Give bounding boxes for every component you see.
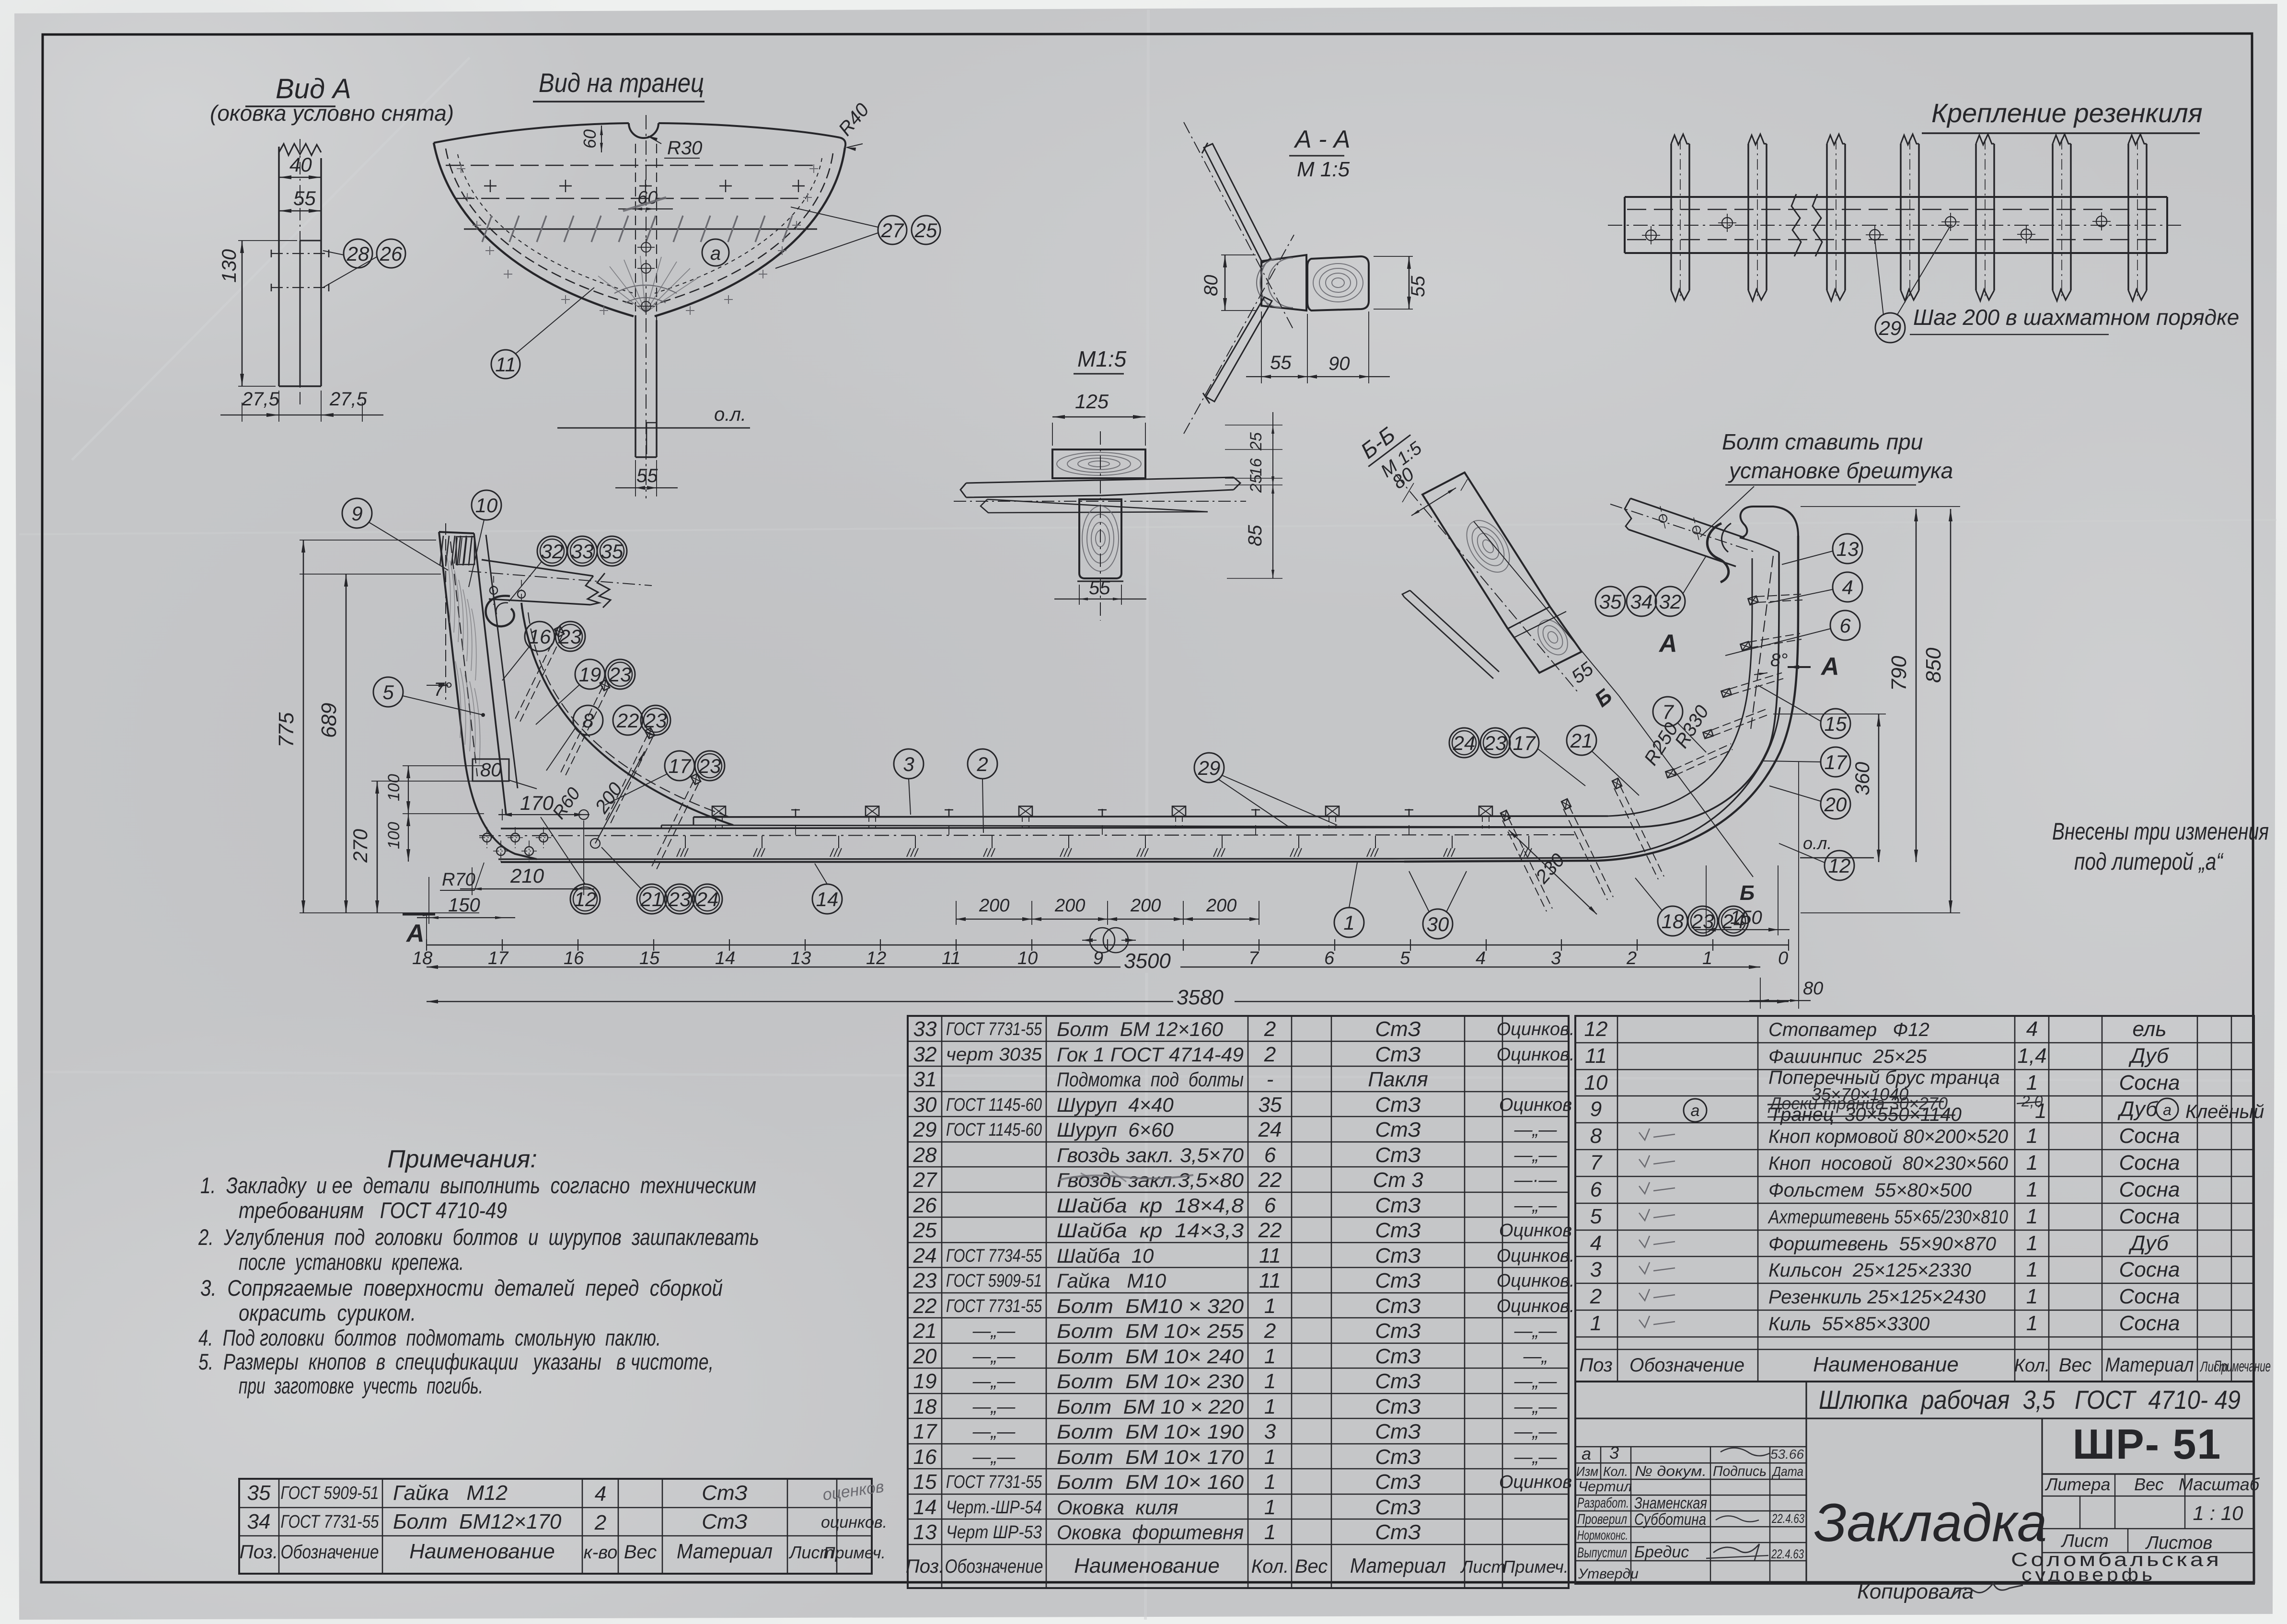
svg-text:1: 1 <box>2026 1071 2038 1094</box>
svg-text:СтЗ: СтЗ <box>1375 1370 1421 1393</box>
svg-text:6: 6 <box>1264 1143 1276 1167</box>
svg-text:18: 18 <box>412 948 432 968</box>
svg-text:СтЗ: СтЗ <box>702 1510 747 1533</box>
svg-text:2: 2 <box>1626 948 1637 968</box>
svg-text:18: 18 <box>913 1395 937 1418</box>
svg-text:16: 16 <box>913 1445 937 1469</box>
svg-text:27: 27 <box>881 219 904 242</box>
svg-text:СтЗ: СтЗ <box>1375 1294 1421 1318</box>
svg-text:—„—: —„— <box>972 1321 1016 1341</box>
svg-text:200: 200 <box>1206 896 1236 916</box>
svg-text:Материал: Материал <box>2105 1353 2194 1376</box>
svg-text:Примечания:: Примечания: <box>387 1145 537 1173</box>
svg-text:80: 80 <box>480 760 502 781</box>
svg-text:2: 2 <box>594 1511 606 1534</box>
svg-text:Сосна: Сосна <box>2119 1124 2180 1148</box>
svg-text:Вес: Вес <box>1295 1556 1328 1577</box>
svg-text:1: 1 <box>2035 1099 2046 1123</box>
svg-text:Закладка: Закладка <box>1814 1493 2047 1553</box>
svg-text:130: 130 <box>218 249 240 283</box>
svg-text:1: 1 <box>2026 1258 2038 1281</box>
svg-text:2: 2 <box>976 753 988 775</box>
svg-text:ГОСТ 5909-51: ГОСТ 5909-51 <box>946 1271 1042 1291</box>
svg-text:ГОСТ 5909-51: ГОСТ 5909-51 <box>281 1483 379 1503</box>
svg-text:Чертил: Чертил <box>1578 1479 1632 1495</box>
svg-text:17: 17 <box>1825 751 1848 773</box>
svg-text:Гайка М10: Гайка М10 <box>1057 1269 1167 1292</box>
svg-text:360: 360 <box>1851 761 1873 795</box>
svg-text:27,5: 27,5 <box>329 389 368 410</box>
svg-text:СтЗ: СтЗ <box>1375 1496 1421 1519</box>
svg-text:Сосна: Сосна <box>2119 1178 2180 1201</box>
svg-text:3580: 3580 <box>1177 986 1224 1009</box>
svg-text:11: 11 <box>1259 1244 1281 1267</box>
svg-text:Болт БМ10 × 320: Болт БМ10 × 320 <box>1057 1295 1244 1317</box>
svg-text:Вид А: Вид А <box>276 73 351 104</box>
svg-text:29: 29 <box>913 1118 937 1141</box>
svg-text:а: а <box>710 243 721 264</box>
svg-text:Б: Б <box>1740 881 1755 905</box>
svg-text:Гок 1 ГОСТ 4714-49: Гок 1 ГОСТ 4714-49 <box>1057 1043 1244 1066</box>
svg-text:7: 7 <box>1590 1151 1603 1175</box>
svg-text:33: 33 <box>913 1017 937 1041</box>
svg-text:12: 12 <box>1828 854 1851 877</box>
svg-text:150: 150 <box>448 895 480 916</box>
svg-text:55: 55 <box>293 187 316 209</box>
svg-text:2: 2 <box>1264 1319 1276 1343</box>
svg-text:СтЗ: СтЗ <box>1375 1420 1421 1443</box>
svg-text:Фашинпис 25×25: Фашинпис 25×25 <box>1768 1046 1927 1067</box>
svg-text:3: 3 <box>1551 948 1561 968</box>
svg-text:10: 10 <box>1584 1071 1608 1094</box>
svg-text:35: 35 <box>247 1481 271 1505</box>
svg-text:о.л.: о.л. <box>1803 833 1832 853</box>
svg-text:Болт БМ 10× 230: Болт БМ 10× 230 <box>1057 1370 1244 1393</box>
svg-text:27,5: 27,5 <box>242 389 280 410</box>
svg-text:окрасить суриком.: окрасить суриком. <box>239 1300 416 1325</box>
svg-text:25: 25 <box>913 1219 937 1242</box>
svg-text:13: 13 <box>913 1520 937 1544</box>
svg-text:Клеёный: Клеёный <box>2185 1101 2264 1122</box>
svg-text:оцинков.: оцинков. <box>821 1513 887 1532</box>
svg-text:СтЗ: СтЗ <box>1375 1395 1421 1418</box>
svg-text:53.66: 53.66 <box>1770 1447 1804 1462</box>
svg-text:22: 22 <box>1258 1168 1282 1192</box>
svg-text:Болт БМ 10× 190: Болт БМ 10× 190 <box>1057 1420 1244 1443</box>
svg-text:13: 13 <box>1837 538 1859 560</box>
svg-text:№ докум.: № докум. <box>1635 1463 1707 1479</box>
svg-text:10: 10 <box>475 494 498 517</box>
svg-text:Вес: Вес <box>2059 1355 2091 1376</box>
svg-text:30: 30 <box>1427 913 1449 935</box>
svg-text:Оцинков.: Оцинков. <box>1497 1271 1575 1291</box>
svg-text:Наименование: Наименование <box>1813 1353 1959 1376</box>
svg-text:Примечание: Примечание <box>2214 1358 2271 1375</box>
svg-text:1: 1 <box>2026 1285 2038 1308</box>
svg-text:СтЗ: СтЗ <box>1375 1244 1421 1267</box>
svg-text:0: 0 <box>1778 948 1788 968</box>
svg-text:33: 33 <box>571 540 594 563</box>
svg-text:8: 8 <box>582 709 594 732</box>
svg-text:Шайба 10: Шайба 10 <box>1057 1244 1154 1267</box>
svg-text:СтЗ: СтЗ <box>1375 1017 1421 1041</box>
svg-text:20: 20 <box>913 1345 937 1368</box>
svg-text:55: 55 <box>1408 276 1429 297</box>
svg-text:М 1:5: М 1:5 <box>1297 158 1350 181</box>
svg-text:200: 200 <box>1130 896 1161 916</box>
svg-text:ГОСТ 7734-55: ГОСТ 7734-55 <box>946 1246 1042 1266</box>
svg-text:12: 12 <box>1584 1017 1608 1041</box>
svg-text:Шуруп 6×60: Шуруп 6×60 <box>1057 1118 1174 1141</box>
svg-text:24: 24 <box>696 888 719 910</box>
svg-text:требованиям ГОСТ 4710-49: требованиям ГОСТ 4710-49 <box>239 1198 507 1223</box>
svg-text:(оковка условно снята): (оковка условно снята) <box>210 101 454 126</box>
svg-text:1: 1 <box>2026 1312 2038 1335</box>
svg-text:55: 55 <box>1089 577 1110 599</box>
svg-text:Кноп кормовой 80×200×520: Кноп кормовой 80×200×520 <box>1768 1126 2008 1147</box>
svg-text:Обозначение: Обозначение <box>1629 1355 1744 1376</box>
svg-text:23: 23 <box>559 625 582 648</box>
svg-text:Шайба кр 14×3,3: Шайба кр 14×3,3 <box>1057 1219 1244 1242</box>
svg-text:1: 1 <box>1264 1345 1276 1368</box>
svg-text:Дуб: Дуб <box>2128 1044 2169 1068</box>
svg-text:Болт БМ 10× 170: Болт БМ 10× 170 <box>1057 1446 1244 1468</box>
svg-text:100: 100 <box>385 822 403 849</box>
svg-text:1: 1 <box>1264 1520 1276 1544</box>
svg-text:21: 21 <box>1570 729 1593 752</box>
svg-text:Субботина: Субботина <box>1634 1510 1706 1529</box>
svg-text:Оцинков: Оцинков <box>1499 1472 1572 1492</box>
svg-text:23: 23 <box>913 1269 937 1292</box>
svg-text:22.4.63: 22.4.63 <box>1771 1511 1804 1526</box>
svg-text:Утверди: Утверди <box>1578 1566 1639 1582</box>
svg-text:32: 32 <box>1659 590 1682 613</box>
svg-text:Стопватер Ф12: Стопватер Ф12 <box>1768 1019 1929 1040</box>
svg-text:Внесены три изменения: Внесены три изменения <box>2052 818 2269 845</box>
svg-text:22.4.63: 22.4.63 <box>1771 1547 1804 1561</box>
svg-text:23: 23 <box>668 888 691 910</box>
svg-text:—·—: —·— <box>1514 1170 1558 1190</box>
svg-text:25: 25 <box>914 219 937 242</box>
svg-text:4: 4 <box>2026 1017 2038 1041</box>
svg-text:17: 17 <box>1513 732 1536 754</box>
svg-text:Наименование: Наименование <box>409 1540 555 1563</box>
svg-text:Резенкиль 25×125×2430: Резенкиль 25×125×2430 <box>1768 1287 1986 1308</box>
svg-text:23: 23 <box>609 663 632 686</box>
svg-text:Гвоздь закл. 3,5×70: Гвоздь закл. 3,5×70 <box>1057 1144 1244 1166</box>
svg-text:15: 15 <box>1825 713 1847 735</box>
svg-text:27: 27 <box>913 1168 937 1192</box>
svg-text:85: 85 <box>1245 525 1266 546</box>
svg-text:Оцинков.: Оцинков. <box>1497 1045 1575 1065</box>
svg-text:А - А: А - А <box>1294 126 1351 153</box>
svg-text:1: 1 <box>2026 1178 2038 1201</box>
svg-text:Крепление резенкиля: Крепление резенкиля <box>1931 98 2203 128</box>
svg-text:1: 1 <box>2026 1124 2038 1148</box>
svg-text:А: А <box>405 920 425 947</box>
svg-text:Примеч.: Примеч. <box>1502 1557 1568 1577</box>
svg-text:Болт БМ12×170: Болт БМ12×170 <box>393 1510 562 1533</box>
svg-text:М1:5: М1:5 <box>1077 346 1127 371</box>
svg-text:—„—: —„— <box>1514 1321 1558 1341</box>
svg-text:СтЗ: СтЗ <box>1375 1118 1421 1141</box>
svg-text:11: 11 <box>1585 1044 1607 1068</box>
svg-text:Ахтерштевень 55×65/230×810: Ахтерштевень 55×65/230×810 <box>1767 1207 2008 1228</box>
svg-text:790: 790 <box>1887 656 1911 691</box>
svg-text:16: 16 <box>564 948 584 968</box>
svg-text:200: 200 <box>1054 896 1085 916</box>
svg-text:ГОСТ 7731-55: ГОСТ 7731-55 <box>281 1512 380 1532</box>
svg-text:2. Углубления под головки: 2. Углубления под головки болтов и шуруп… <box>198 1224 759 1250</box>
svg-text:ГОСТ 7731-55: ГОСТ 7731-55 <box>946 1472 1042 1492</box>
svg-text:100: 100 <box>385 774 403 801</box>
svg-text:о.л.: о.л. <box>714 404 746 425</box>
svg-text:1: 1 <box>2026 1232 2038 1255</box>
svg-text:18: 18 <box>1662 910 1684 933</box>
svg-text:Оцинков: Оцинков <box>1499 1095 1572 1115</box>
svg-text:1: 1 <box>1264 1395 1276 1418</box>
svg-text:Форштевень 55×90×870: Форштевень 55×90×870 <box>1768 1233 1996 1255</box>
svg-text:35: 35 <box>1259 1093 1282 1117</box>
svg-text:30: 30 <box>913 1093 937 1117</box>
svg-text:28: 28 <box>347 242 370 265</box>
svg-text:Кноп носовой 80×230×560: Кноп носовой 80×230×560 <box>1768 1153 2008 1174</box>
svg-text:32: 32 <box>541 540 564 563</box>
svg-text:Сосна: Сосна <box>2119 1258 2180 1281</box>
svg-text:Болт БМ 10× 160: Болт БМ 10× 160 <box>1057 1471 1244 1493</box>
svg-text:3: 3 <box>1590 1258 1602 1281</box>
svg-text:Киль 55×85×3300: Киль 55×85×3300 <box>1768 1313 1929 1335</box>
svg-text:4: 4 <box>1590 1232 1602 1255</box>
svg-text:Литера: Литера <box>2045 1474 2111 1494</box>
svg-text:—„—: —„— <box>1514 1196 1558 1216</box>
svg-text:а: а <box>1582 1444 1591 1463</box>
svg-text:А: А <box>1658 630 1677 657</box>
svg-text:—„—: —„— <box>1514 1422 1558 1442</box>
svg-text:Сосна: Сосна <box>2119 1285 2180 1308</box>
svg-text:СтЗ: СтЗ <box>1375 1269 1421 1292</box>
svg-text:90: 90 <box>1328 353 1350 374</box>
svg-text:23: 23 <box>644 709 667 732</box>
svg-text:12: 12 <box>574 888 597 910</box>
svg-text:—„—: —„— <box>972 1347 1016 1367</box>
svg-text:Выпустил: Выпустил <box>1577 1545 1627 1561</box>
svg-text:23: 23 <box>698 755 721 777</box>
svg-text:—„—: —„— <box>1514 1120 1558 1140</box>
svg-text:2: 2 <box>1264 1043 1276 1066</box>
svg-text:Примеч.: Примеч. <box>823 1544 886 1562</box>
svg-text:14: 14 <box>816 888 839 910</box>
svg-text:1: 1 <box>1264 1470 1276 1494</box>
svg-text:Изм: Изм <box>1576 1464 1598 1479</box>
svg-text:Лист: Лист <box>1460 1557 1506 1577</box>
svg-text:СтЗ: СтЗ <box>1375 1194 1421 1217</box>
svg-text:ГОСТ 7731-55: ГОСТ 7731-55 <box>946 1019 1042 1039</box>
svg-text:1: 1 <box>1264 1370 1276 1393</box>
svg-text:СтЗ: СтЗ <box>1375 1143 1421 1167</box>
svg-text:СтЗ: СтЗ <box>1375 1470 1421 1494</box>
svg-text:—„—: —„— <box>1514 1447 1558 1467</box>
svg-text:Кильсон 25×125×2330: Кильсон 25×125×2330 <box>1768 1260 1971 1281</box>
svg-text:200: 200 <box>979 896 1009 916</box>
svg-text:Оцинков: Оцинков <box>1499 1221 1572 1241</box>
svg-text:СтЗ: СтЗ <box>702 1481 747 1505</box>
svg-text:19: 19 <box>913 1370 937 1393</box>
svg-text:80: 80 <box>1201 275 1222 297</box>
svg-text:7: 7 <box>1662 701 1674 723</box>
svg-text:4: 4 <box>1476 948 1486 968</box>
svg-text:—„: —„ <box>1523 1347 1548 1367</box>
svg-text:Нормоконс.: Нормоконс. <box>1577 1528 1628 1543</box>
svg-text:34: 34 <box>247 1510 271 1533</box>
svg-text:к-во: к-во <box>584 1543 618 1563</box>
svg-text:—„—: —„— <box>972 1447 1016 1467</box>
svg-text:Поз.: Поз. <box>240 1542 278 1563</box>
svg-text:СтЗ: СтЗ <box>1375 1345 1421 1368</box>
svg-text:Оковка форштевня: Оковка форштевня <box>1057 1521 1244 1543</box>
svg-text:Вес: Вес <box>624 1542 657 1563</box>
svg-text:Дуб: Дуб <box>2117 1097 2158 1121</box>
svg-text:Сосна: Сосна <box>2119 1312 2180 1335</box>
svg-text:21: 21 <box>913 1319 937 1343</box>
svg-text:14: 14 <box>913 1496 937 1519</box>
svg-text:31: 31 <box>913 1068 937 1091</box>
svg-text:125: 125 <box>1075 390 1109 413</box>
svg-text:Оцинков.: Оцинков. <box>1497 1019 1575 1039</box>
svg-text:Вид на транец: Вид на транец <box>539 68 704 98</box>
svg-text:40: 40 <box>289 153 312 176</box>
svg-text:29: 29 <box>1879 317 1902 339</box>
svg-text:Болт БМ 12×160: Болт БМ 12×160 <box>1057 1018 1224 1040</box>
svg-text:-: - <box>1267 1068 1274 1091</box>
svg-text:20: 20 <box>1824 793 1847 816</box>
svg-text:11: 11 <box>942 948 960 968</box>
svg-text:Бредис: Бредис <box>1634 1543 1689 1561</box>
svg-text:Гайка М12: Гайка М12 <box>393 1481 508 1505</box>
svg-text:17: 17 <box>488 948 509 968</box>
svg-text:1,4: 1,4 <box>2017 1044 2046 1068</box>
svg-text:1: 1 <box>1343 911 1354 934</box>
svg-text:6: 6 <box>1324 948 1335 968</box>
svg-text:13: 13 <box>791 948 811 968</box>
svg-text:21: 21 <box>640 888 663 910</box>
svg-text:после установки крепежа.: после установки крепежа. <box>239 1249 464 1275</box>
svg-text:1: 1 <box>1264 1445 1276 1469</box>
svg-text:Оцинков.: Оцинков. <box>1497 1246 1575 1266</box>
svg-text:28: 28 <box>913 1143 937 1167</box>
svg-text:4: 4 <box>595 1482 606 1506</box>
svg-text:Гвоздь закл.3,5×80: Гвоздь закл.3,5×80 <box>1057 1169 1244 1191</box>
svg-text:Кол.: Кол. <box>2014 1356 2050 1376</box>
svg-text:Болт ставить при: Болт ставить при <box>1722 429 1923 454</box>
svg-text:24: 24 <box>913 1244 937 1267</box>
svg-text:5: 5 <box>382 681 394 703</box>
svg-text:210: 210 <box>510 864 544 887</box>
svg-text:Ст 3: Ст 3 <box>1373 1168 1423 1192</box>
svg-text:СтЗ: СтЗ <box>1375 1093 1421 1117</box>
svg-text:24: 24 <box>1258 1118 1282 1141</box>
svg-text:23: 23 <box>1691 910 1714 933</box>
svg-text:4. Под головки болтов подмо: 4. Под головки болтов подмотать смольную… <box>198 1325 661 1350</box>
svg-text:775: 775 <box>275 712 298 748</box>
svg-text:3: 3 <box>1609 1443 1619 1463</box>
svg-text:Разработ.: Разработ. <box>1577 1495 1629 1511</box>
svg-text:Шлюпка рабочая 3,5 ГОСТ 4: Шлюпка рабочая 3,5 ГОСТ 4710- 49 <box>1819 1385 2241 1415</box>
svg-text:Фольстем 55×80×500: Фольстем 55×80×500 <box>1768 1180 1972 1201</box>
svg-text:СтЗ: СтЗ <box>1375 1219 1421 1242</box>
svg-text:16: 16 <box>1247 458 1265 476</box>
svg-text:1: 1 <box>1264 1496 1276 1519</box>
svg-text:а: а <box>1691 1102 1700 1120</box>
svg-text:5: 5 <box>1590 1205 1602 1228</box>
svg-text:Масштаб: Масштаб <box>2179 1474 2260 1494</box>
svg-text:Шаг 200 в шахматном порядке: Шаг 200 в шахматном порядке <box>1913 305 2239 330</box>
svg-text:25: 25 <box>1247 432 1265 451</box>
svg-text:Сосна: Сосна <box>2119 1151 2180 1175</box>
svg-text:850: 850 <box>1922 647 1945 683</box>
svg-text:СтЗ: СтЗ <box>1375 1043 1421 1066</box>
svg-text:15: 15 <box>913 1470 937 1494</box>
svg-text:3. Сопрягаемые поверхности: 3. Сопрягаемые поверхности деталей перед… <box>200 1275 723 1301</box>
svg-text:1: 1 <box>1264 1294 1276 1318</box>
svg-text:ГОСТ 1145-60: ГОСТ 1145-60 <box>946 1120 1042 1140</box>
svg-text:—„—: —„— <box>1514 1371 1558 1392</box>
svg-text:Кол.: Кол. <box>1251 1556 1289 1577</box>
svg-text:Материал: Материал <box>677 1540 773 1563</box>
svg-text:—„—: —„— <box>972 1371 1016 1392</box>
svg-text:22: 22 <box>616 709 639 732</box>
svg-text:Подмотка под болты: Подмотка под болты <box>1057 1068 1244 1091</box>
svg-text:23: 23 <box>1484 732 1507 754</box>
svg-text:1: 1 <box>2026 1151 2038 1175</box>
svg-text:4: 4 <box>1842 576 1853 599</box>
svg-text:Наименование: Наименование <box>1074 1554 1220 1578</box>
svg-text:—„—: —„— <box>972 1397 1016 1417</box>
svg-text:Кол.: Кол. <box>1603 1464 1628 1479</box>
svg-text:Поз: Поз <box>1579 1355 1612 1376</box>
svg-text:—„—: —„— <box>972 1422 1016 1442</box>
svg-text:6: 6 <box>1590 1178 1602 1201</box>
svg-text:ель: ель <box>2133 1017 2167 1041</box>
svg-text:80: 80 <box>1803 979 1823 999</box>
svg-text:60: 60 <box>580 129 600 149</box>
svg-text:1: 1 <box>2026 1205 2038 1228</box>
svg-text:Подпись: Подпись <box>1713 1463 1767 1479</box>
svg-text:9: 9 <box>1590 1097 1602 1121</box>
svg-text:3: 3 <box>903 753 914 775</box>
svg-text:R70: R70 <box>442 870 475 890</box>
svg-text:7: 7 <box>1248 948 1259 968</box>
svg-text:15: 15 <box>639 948 660 968</box>
svg-text:1 : 10: 1 : 10 <box>2193 1502 2243 1524</box>
svg-text:32: 32 <box>913 1043 937 1066</box>
svg-text:1. Закладку и ее детали вы: 1. Закладку и ее детали выполнить соглас… <box>200 1173 756 1198</box>
svg-text:1: 1 <box>1702 948 1712 968</box>
svg-text:ШР- 51: ШР- 51 <box>2073 1420 2222 1468</box>
svg-text:14: 14 <box>715 948 735 968</box>
svg-text:16: 16 <box>529 625 551 648</box>
svg-text:Сосна: Сосна <box>2119 1071 2180 1094</box>
svg-text:3: 3 <box>1264 1420 1276 1443</box>
svg-text:9: 9 <box>351 502 362 525</box>
svg-text:Оцинков.: Оцинков. <box>1497 1296 1575 1316</box>
svg-text:Шайба кр 18×4,8: Шайба кр 18×4,8 <box>1057 1194 1244 1217</box>
svg-text:11: 11 <box>495 353 516 376</box>
svg-text:при заготовке учесть погибь: при заготовке учесть погибь. <box>239 1373 483 1398</box>
svg-text:29: 29 <box>1198 757 1221 779</box>
svg-text:Знаменская: Знаменская <box>1634 1494 1707 1512</box>
svg-text:2: 2 <box>1590 1285 1602 1308</box>
